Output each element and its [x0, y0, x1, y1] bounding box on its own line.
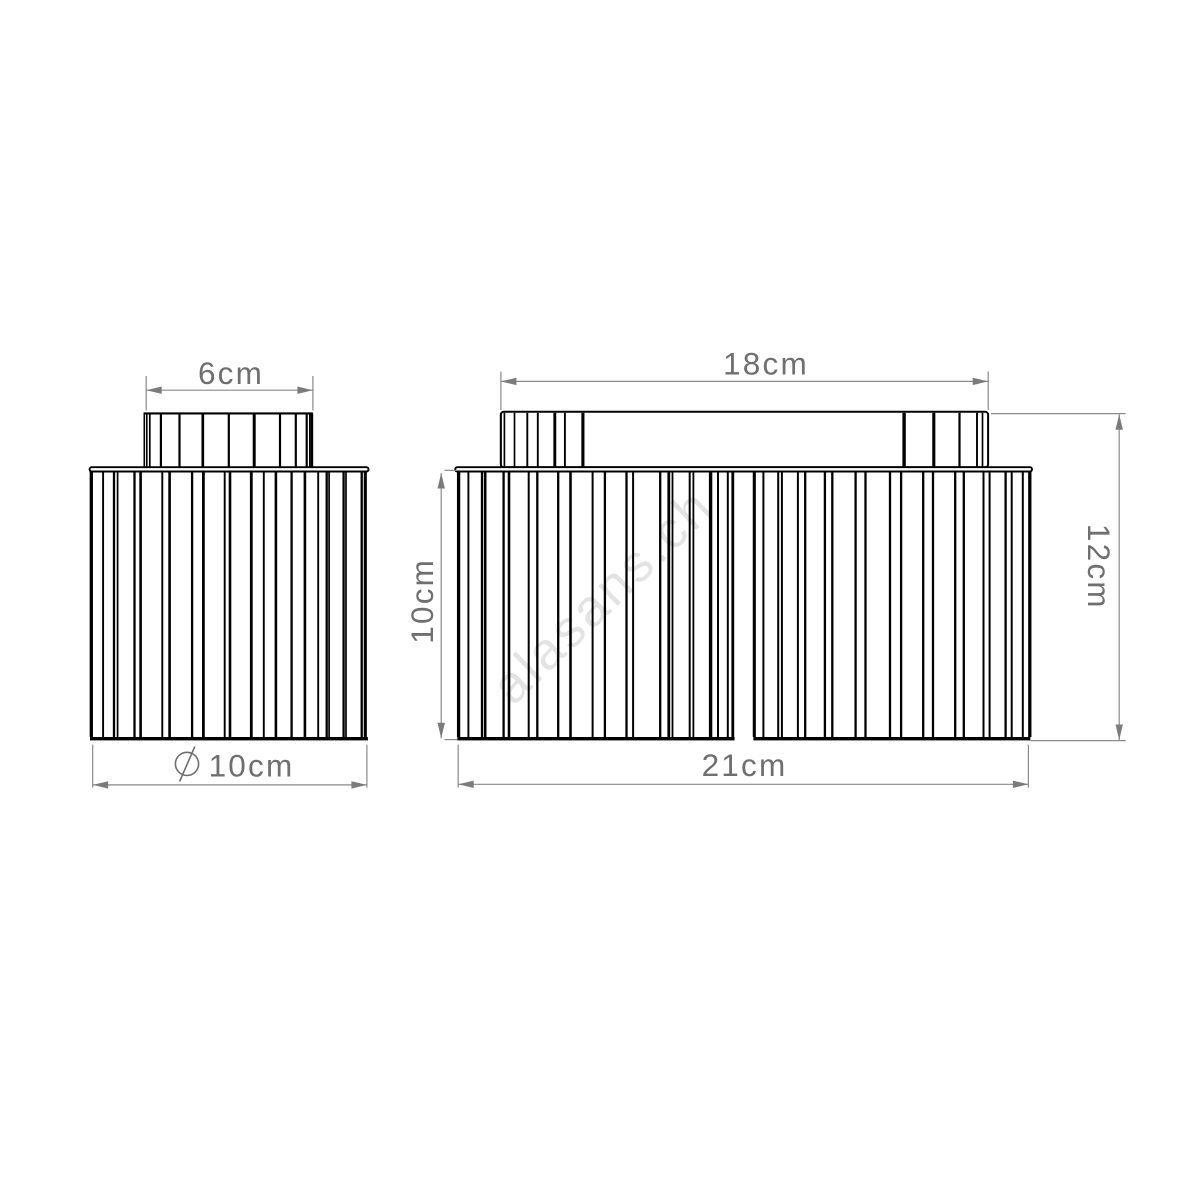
svg-text:12cm: 12cm	[1081, 524, 1117, 610]
svg-text:6cm: 6cm	[198, 355, 264, 391]
svg-text:18cm: 18cm	[723, 346, 809, 382]
svg-text:10cm: 10cm	[404, 558, 440, 644]
svg-text:21cm: 21cm	[702, 747, 788, 783]
svg-text:10cm: 10cm	[209, 747, 295, 783]
